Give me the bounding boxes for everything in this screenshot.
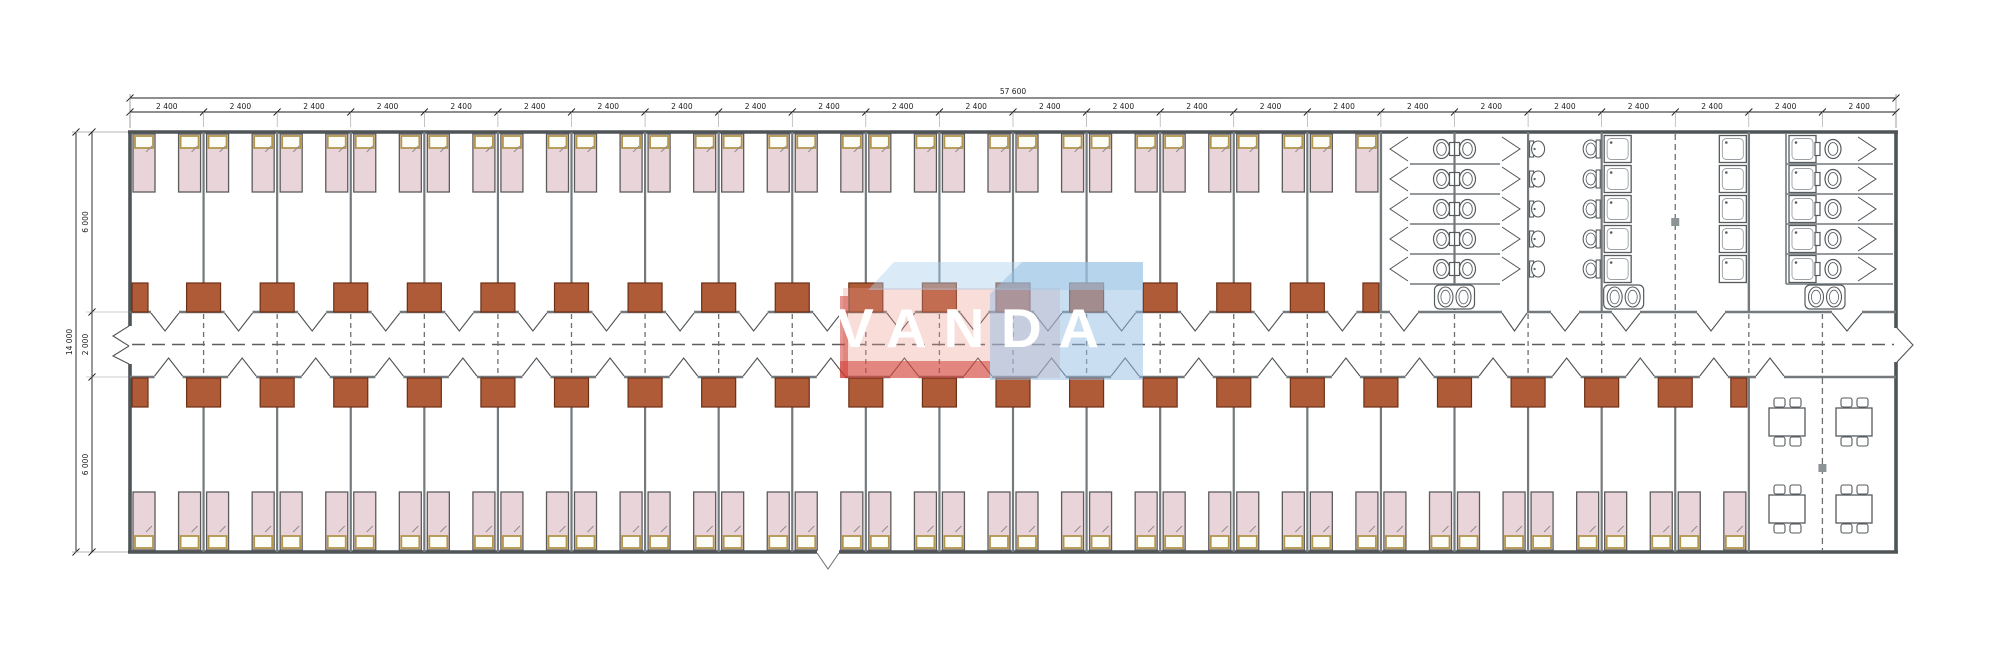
cubicle-door-swing [1502,197,1520,221]
wardrobe-block [407,378,441,407]
bed-pillow [1386,536,1404,548]
door-swing [1255,313,1283,331]
bed-pillow [1460,536,1478,548]
shower-drain [1610,261,1613,264]
door-swing [1328,313,1356,331]
door-swing [1390,313,1418,331]
chair [1790,437,1801,446]
wardrobe-block [132,378,148,407]
door-swing [1034,313,1062,331]
door-swing [225,313,253,331]
chair [1790,524,1801,533]
wardrobe-block [775,283,809,312]
entrance-door-swing [113,326,129,346]
shower-drain [1610,201,1613,204]
bed-pillow [1211,536,1229,548]
washbasin [1596,170,1600,188]
bed-pillow [769,136,787,148]
bed-pillow [944,536,962,548]
chair [1857,398,1868,407]
dimension-label-segment: 6 000 [81,454,90,476]
bed-pillow [797,136,815,148]
bed-pillow [401,536,419,548]
wc-toilet-tank [1455,263,1460,276]
door-swing [813,313,841,331]
bed-pillow [1137,536,1155,548]
bed-pillow [1284,136,1302,148]
wardrobe-block [1363,283,1379,312]
door-swing [670,358,698,376]
wardrobe-block [334,283,368,312]
wc-toilet-tank [1455,143,1460,156]
bed-pillow [871,536,889,548]
shower-drain [1610,141,1613,144]
dimension-label-bay: 2 400 [671,102,693,111]
chair [1790,485,1801,494]
door-swing [228,358,256,376]
door-swing [743,358,771,376]
dimension-label-bay: 2 400 [1113,102,1135,111]
wardrobe-block [1290,378,1324,407]
dimension-label-bay: 2 400 [1848,102,1870,111]
door-swing [887,313,915,331]
bed-pillow [990,136,1008,148]
dimension-label-bay: 2 400 [450,102,472,111]
bed-pillow [990,536,1008,548]
cubicle-door-swing [1390,257,1408,281]
wardrobe-block [1143,378,1177,407]
dimension-label-bay: 2 400 [1554,102,1576,111]
dimension-label-bay: 2 400 [1407,102,1429,111]
bed-pillow [1092,136,1110,148]
wardrobe-block [628,283,662,312]
bed-pillow [1312,136,1330,148]
cubicle-door-swing [1858,257,1876,281]
door-swing [1551,313,1579,331]
cubicle-door-swing [1502,137,1520,161]
bed-pillow [944,136,962,148]
dimension-label-total: 14 000 [65,329,74,355]
door-swing [1185,358,1213,376]
wardrobe-block [996,378,1030,407]
shower-drain [1795,201,1798,204]
door-swing [302,358,330,376]
bed-pillow [429,136,447,148]
chair [1857,485,1868,494]
bed-pillow [1239,536,1257,548]
cubicle-door-swing [1502,167,1520,191]
chair [1857,524,1868,533]
bed-pillow [1239,136,1257,148]
shower-drain [1725,261,1728,264]
shower-drain [1610,231,1613,234]
dimension-label-segment: 2 000 [81,334,90,356]
bed-pillow [1607,536,1625,548]
door-swing [155,358,183,376]
cubicle-door-swing [1390,137,1408,161]
bed-pillow [1432,536,1450,548]
bed-pillow [181,136,199,148]
washbasin [1596,140,1600,158]
column-marker [1671,218,1679,226]
door-swing [298,313,326,331]
bed-pillow [475,536,493,548]
wc-toilet-tank [1455,173,1460,186]
wardrobe-block [407,283,441,312]
bed-pillow [1211,136,1229,148]
bed-pillow [1284,536,1302,548]
door-swing [1756,358,1784,376]
chair [1790,398,1801,407]
wardrobe-block [481,283,515,312]
dimension-label-segment: 6 000 [81,211,90,233]
floor-plan-drawing: 57 6002 4002 4002 4002 4002 4002 4002 40… [0,0,2000,654]
door-swing [817,358,845,376]
bed-pillow [696,536,714,548]
bed-pillow [1064,536,1082,548]
chair [1841,398,1852,407]
cubicle-door-swing [1502,257,1520,281]
wardrobe-block [1143,283,1177,312]
shower-drain [1725,231,1728,234]
wardrobe-block [334,378,368,407]
door-swing [1502,313,1527,331]
bed-pillow [401,136,419,148]
bed-pillow [328,536,346,548]
shower-drain [1795,231,1798,234]
bed-pillow [282,536,300,548]
bed-pillow [209,136,227,148]
bed-pillow [135,136,153,148]
wardrobe-block [922,378,956,407]
door-swing [890,358,918,376]
bed-pillow [650,136,668,148]
bed-pillow [577,536,595,548]
dining-table [1769,408,1805,436]
dimension-label-bay: 2 400 [1039,102,1061,111]
door-swing [1111,358,1139,376]
cubicle-door-swing [1858,137,1876,161]
bed-pillow [1064,136,1082,148]
bed-pillow [1018,136,1036,148]
door-swing [1479,358,1507,376]
chair [1841,485,1852,494]
column-marker [1818,464,1826,472]
door-swing [449,358,477,376]
wardrobe-block [702,283,736,312]
wardrobe-block [702,378,736,407]
door-swing [523,358,551,376]
dimension-label-bay: 2 400 [745,102,767,111]
door-swing [151,313,179,331]
bed-pillow [724,536,742,548]
bed-pillow [871,136,889,148]
bed-pillow [549,136,567,148]
wardrobe-block [996,283,1030,312]
shower-drain [1725,171,1728,174]
bed-pillow [1018,536,1036,548]
wc-toilet-tank [1450,263,1455,276]
entrance-door-swing [113,346,129,364]
shower-drain [1795,171,1798,174]
entrance-door-swing [817,553,839,569]
wardrobe-block [1364,378,1398,407]
bed-pillow [282,136,300,148]
wc-toilet-tank [1815,173,1820,186]
door-swing [1108,313,1136,331]
bed-pillow [1358,136,1376,148]
wardrobe-block [260,378,294,407]
bed-pillow [1312,536,1330,548]
bed-pillow [209,536,227,548]
chair [1857,437,1868,446]
wardrobe-block [849,283,883,312]
bed-pillow [650,536,668,548]
chair [1841,437,1852,446]
wardrobe-block [555,283,589,312]
shower-drain [1795,141,1798,144]
bed-pillow [1165,136,1183,148]
shower-drain [1795,261,1798,264]
wc-toilet-tank [1815,233,1820,246]
bed-pillow [181,536,199,548]
bed-pillow [724,136,742,148]
wc-toilet-tank [1455,203,1460,216]
chair [1774,398,1785,407]
door-swing [1258,358,1286,376]
dimension-label-bay: 2 400 [1333,102,1355,111]
shower-drain [1610,171,1613,174]
chair [1774,524,1785,533]
wardrobe-block [187,378,221,407]
door-swing [1697,313,1725,331]
wc-toilet-tank [1815,263,1820,276]
door-swing [666,313,694,331]
door-swing [593,313,621,331]
bed-pillow [254,536,272,548]
bed-pillow [769,536,787,548]
wc-toilet-tank [1815,203,1820,216]
door-swing [1832,313,1862,331]
dimension-label-bay: 2 400 [965,102,987,111]
wc-toilet-tank [1815,143,1820,156]
dimension-label-bay: 2 400 [156,102,178,111]
bed-pillow [1505,536,1523,548]
door-swing [1553,358,1581,376]
dimension-label-bay: 2 400 [524,102,546,111]
door-swing [1038,358,1066,376]
bed-pillow [356,536,374,548]
washbasin [1596,200,1600,218]
door-swing [964,358,992,376]
cubicle-door-swing [1390,167,1408,191]
bed-pillow [254,136,272,148]
dimension-label-bay: 2 400 [303,102,325,111]
dining-table [1836,408,1872,436]
cubicle-door-swing [1390,227,1408,251]
wc-toilet-tank [1450,173,1455,186]
wardrobe-block [1290,283,1324,312]
wardrobe-block [1438,378,1472,407]
door-swing [1181,313,1209,331]
bed-pillow [1358,536,1376,548]
wardrobe-block [1585,378,1619,407]
wardrobe-block [849,378,883,407]
door-swing [372,313,400,331]
chair [1774,485,1785,494]
door-swing [445,313,473,331]
dimension-label-bay: 2 400 [1628,102,1650,111]
wardrobe-block [260,283,294,312]
bed-pillow [1726,536,1744,548]
cubicle-door-swing [1390,197,1408,221]
bed-pillow [577,136,595,148]
cubicle-door-swing [1858,167,1876,191]
wardrobe-block [1658,378,1692,407]
wardrobe-block [1070,378,1104,407]
bed-pillow [1579,536,1597,548]
wardrobe-block [1070,283,1104,312]
bed-pillow [1533,536,1551,548]
dining-table [1836,495,1872,523]
door-swing [960,313,988,331]
door-swing [1700,358,1728,376]
bed-pillow [1680,536,1698,548]
bed-pillow [1165,536,1183,548]
dimension-label-bay: 2 400 [1186,102,1208,111]
bed-pillow [843,536,861,548]
bed-pillow [843,136,861,148]
bed-pillow [916,136,934,148]
dimension-label-bay: 2 400 [1701,102,1723,111]
washbasin-tap [1533,268,1535,270]
dimension-label-bay: 2 400 [1260,102,1282,111]
door-swing [375,358,403,376]
entrance-door-swing [1897,328,1913,362]
bed-pillow [549,536,567,548]
cubicle-door-swing [1502,227,1520,251]
wardrobe-block [1217,378,1251,407]
chair [1774,437,1785,446]
bed-pillow [1652,536,1670,548]
door-swing [519,313,547,331]
door-swing [740,313,768,331]
bed-pillow [503,536,521,548]
wardrobe-block [1217,283,1251,312]
wardrobe-block [628,378,662,407]
dimension-label-bay: 2 400 [892,102,914,111]
bed-pillow [916,536,934,548]
chair [1841,524,1852,533]
wc-toilet-tank [1450,233,1455,246]
dimension-label-total: 57 600 [1000,87,1026,96]
wardrobe-block [775,378,809,407]
shower-drain [1725,201,1728,204]
bed-pillow [622,136,640,148]
bed-pillow [797,536,815,548]
bed-pillow [475,136,493,148]
dining-table [1769,495,1805,523]
bed-pillow [1092,536,1110,548]
wardrobe-block [922,283,956,312]
dimension-label-bay: 2 400 [230,102,252,111]
dimension-label-bay: 2 400 [377,102,399,111]
dimension-label-bay: 2 400 [1775,102,1797,111]
dimension-label-bay: 2 400 [598,102,620,111]
dimension-label-bay: 2 400 [818,102,840,111]
floor-plan-canvas: 57 6002 4002 4002 4002 4002 4002 4002 40… [0,0,2000,654]
shower-drain [1725,141,1728,144]
door-swing [1332,358,1360,376]
wc-toilet-tank [1450,203,1455,216]
wc-toilet-tank [1450,143,1455,156]
dimension-label-bay: 2 400 [1481,102,1503,111]
wardrobe-block [187,283,221,312]
bed-pillow [1137,136,1155,148]
bed-pillow [622,536,640,548]
wardrobe-block [481,378,515,407]
wardrobe-block [132,283,148,312]
wardrobe-block [1731,378,1747,407]
washbasin-tap [1533,178,1535,180]
bed-pillow [356,136,374,148]
cubicle-door-swing [1858,197,1876,221]
cubicle-door-swing [1858,227,1876,251]
door-swing [596,358,624,376]
wardrobe-block [555,378,589,407]
bed-pillow [328,136,346,148]
washbasin-tap [1533,208,1535,210]
door-swing [1612,313,1640,331]
wardrobe-block [1511,378,1545,407]
bed-pillow [696,136,714,148]
door-swing [1406,358,1434,376]
wc-toilet-tank [1455,233,1460,246]
washbasin [1596,230,1600,248]
bed-pillow [135,536,153,548]
door-swing [1626,358,1654,376]
bed-pillow [503,136,521,148]
washbasin-tap [1533,238,1535,240]
washbasin [1596,260,1600,278]
washbasin-tap [1533,148,1535,150]
bed-pillow [429,536,447,548]
